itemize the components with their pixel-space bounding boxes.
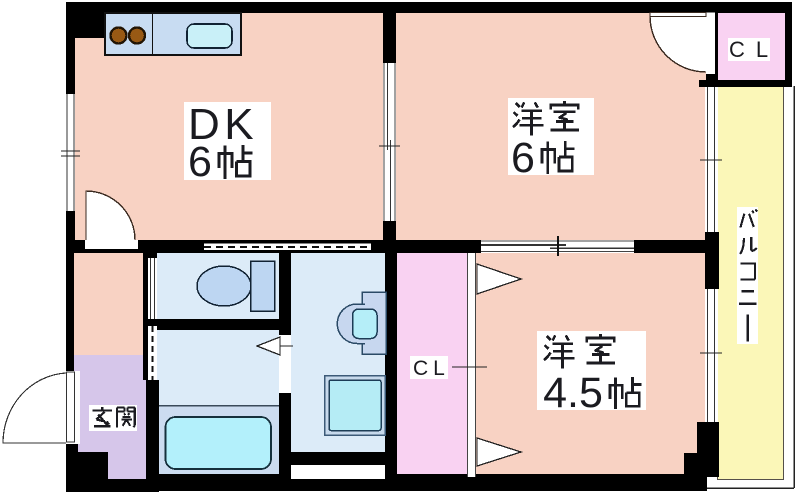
svg-text:CL: CL (729, 37, 779, 62)
svg-text:CL: CL (413, 357, 450, 380)
svg-text:6: 6 (188, 138, 212, 186)
svg-text:4.5: 4.5 (543, 369, 603, 417)
svg-text:6: 6 (511, 134, 535, 182)
